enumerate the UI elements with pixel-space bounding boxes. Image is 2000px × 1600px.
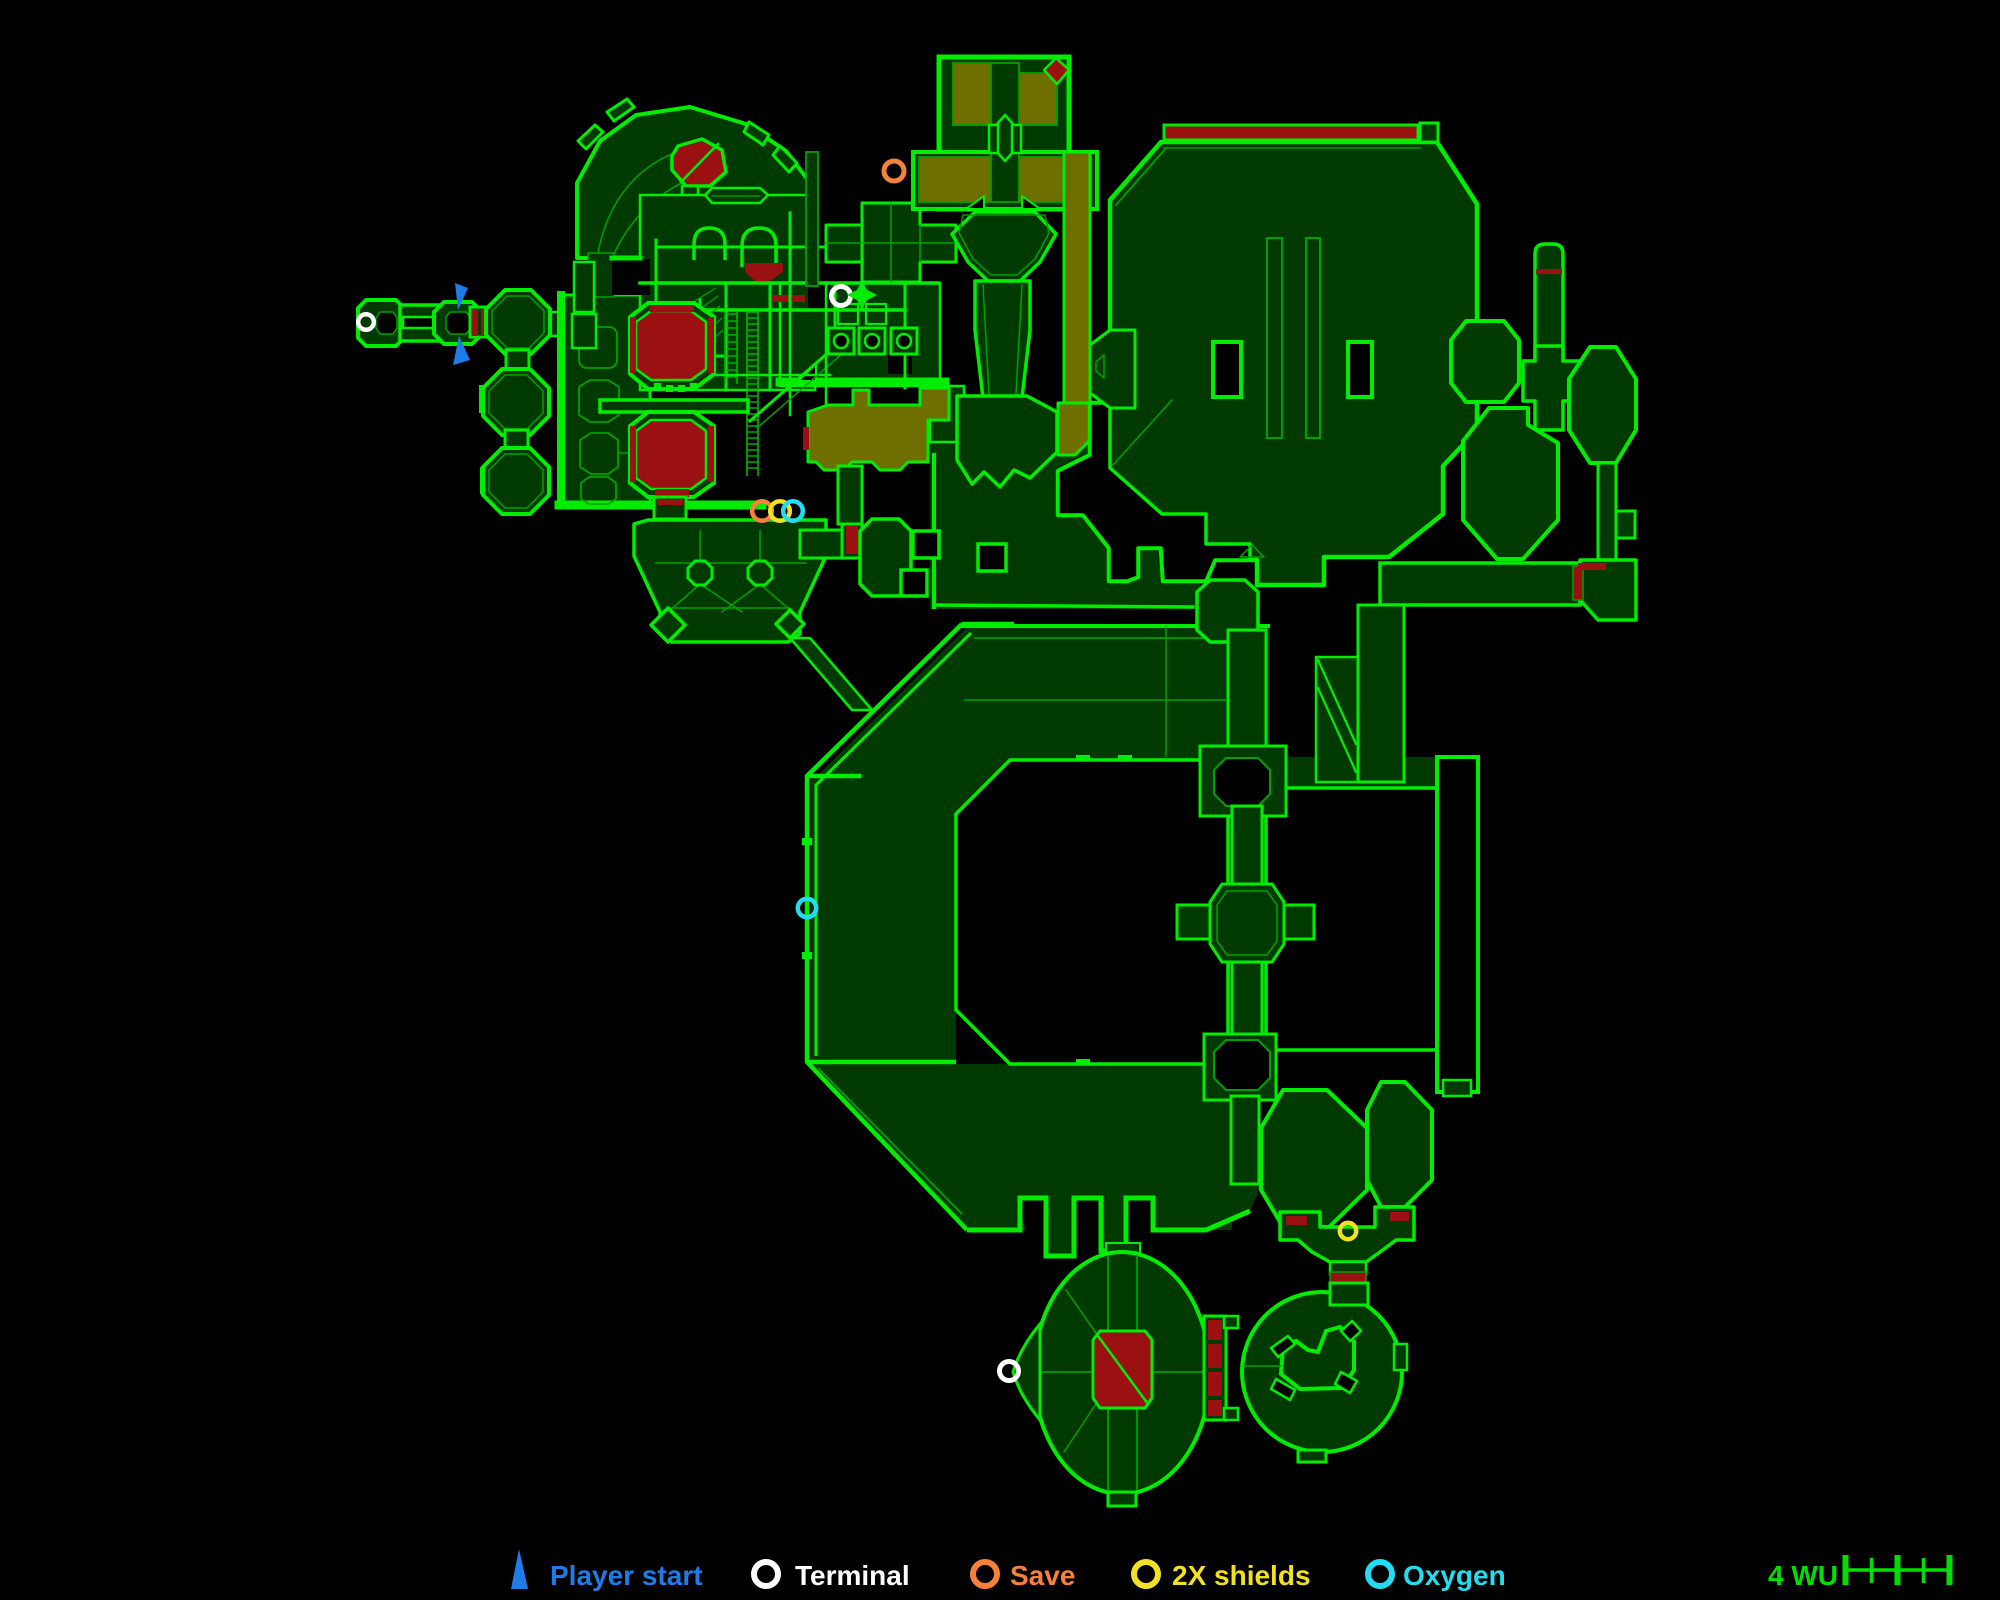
svg-text:4 WU: 4 WU: [1768, 1560, 1838, 1591]
svg-text:Oxygen: Oxygen: [1403, 1560, 1506, 1591]
svg-text:Terminal: Terminal: [795, 1560, 910, 1591]
svg-text:2X shields: 2X shields: [1172, 1560, 1311, 1591]
svg-text:Player start: Player start: [550, 1560, 703, 1591]
svg-text:Save: Save: [1010, 1560, 1075, 1591]
